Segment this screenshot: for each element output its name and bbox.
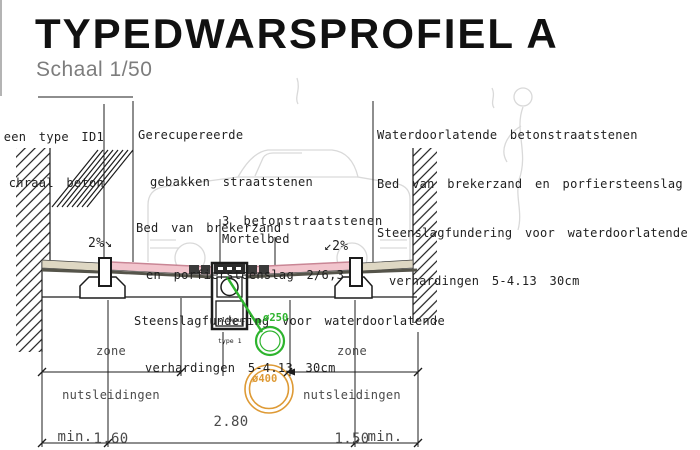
dim-text: min. (46, 429, 104, 446)
dim-text: zone (287, 343, 417, 359)
annotation-line: verhardingen 5-4.13 30cm (377, 271, 688, 292)
page-title: TYPEDWARSPROFIEL A (35, 12, 559, 56)
annotation-right-block: Waterdoorlatende betonstraatstenen Bed v… (377, 97, 688, 320)
drawing-canvas: TYPEDWARSPROFIEL A Schaal 1/50 een type … (0, 0, 700, 450)
slope-label-left: 2%↘ (88, 236, 112, 251)
annotation-line: Waterdoorlatende betonstraatstenen (377, 125, 688, 146)
dim-text: zone (46, 343, 176, 359)
annotation-line: Bed van brekerzand en porfiersteenslag (377, 174, 688, 195)
green-pipe-label: ø250 (263, 312, 288, 324)
dim-total-center: 2.80 (201, 414, 261, 430)
dim-min-right: min. 0.80 (356, 397, 414, 450)
pit-type-label-line: type 1 (218, 338, 244, 345)
pit-type-label: slikput type 1 (218, 303, 244, 359)
dim-text: min. (356, 429, 414, 446)
gutter-left-slot (99, 258, 111, 286)
annotation-line: Steenslagfundering voor waterdoorlatende (377, 223, 688, 244)
page-subtitle: Schaal 1/50 (36, 58, 152, 82)
pit-type-label-line: slikput (218, 317, 244, 324)
annotation-line: een type ID1 (0, 128, 104, 146)
slope-label-right: ↙2% (324, 239, 348, 254)
annotation-left-block: een type ID1 chraal beton (0, 100, 104, 220)
dim-min-left: min. 0.80 (46, 397, 104, 450)
annotation-line: chraal beton (0, 174, 104, 192)
orange-pipe-label: ø400 (252, 373, 277, 385)
mortar-label: Mortelbed (222, 232, 290, 246)
pavers-label: 3 betonstraatstenen (222, 214, 383, 228)
